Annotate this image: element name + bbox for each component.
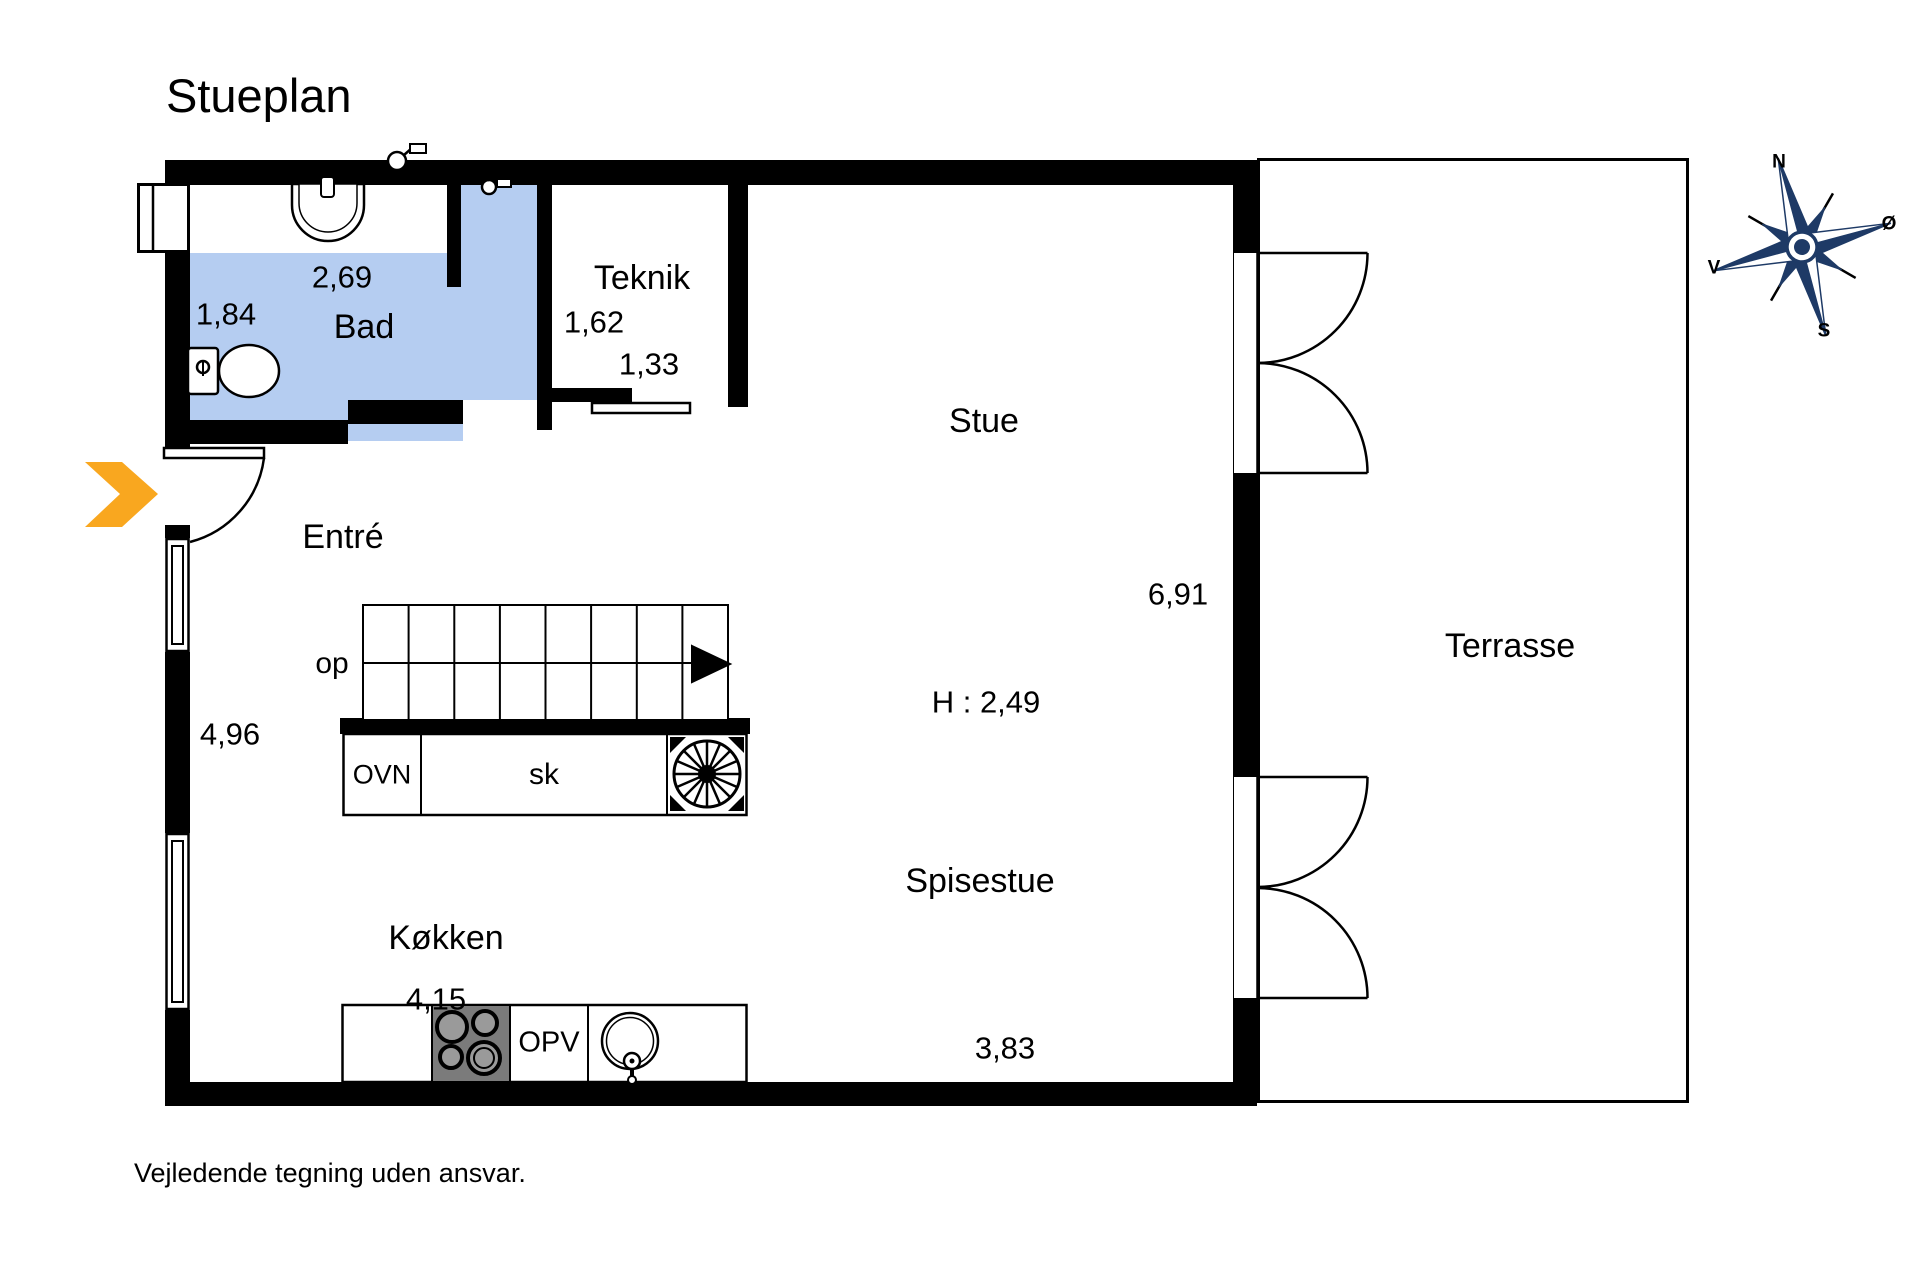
compass-east-label: Ø: [1882, 215, 1897, 234]
terrace-door-top: [1258, 253, 1368, 473]
room-label-bad: Bad: [334, 310, 395, 344]
floorplan-drawing: [0, 0, 1920, 1280]
dim-bad-width: 2,69: [312, 262, 372, 293]
stairs: [363, 605, 730, 720]
dim-spisestue-width: 3,83: [975, 1033, 1035, 1064]
cabinet-label: sk: [529, 760, 559, 790]
dim-teknik-2: 1,33: [619, 349, 679, 380]
disclaimer-text: Vejledende tegning uden ansvar.: [134, 1160, 526, 1187]
wall-bath-stub: [447, 185, 461, 287]
dim-bad-depth: 1,84: [196, 299, 256, 330]
floorplan-page: Stueplan Bad 2,69 1,84 Teknik 1,62 1,33 …: [0, 0, 1920, 1280]
bathroom-door-gap: [463, 400, 537, 441]
entry-arrow-icon: [85, 462, 158, 527]
dim-teknik-1: 1,62: [564, 307, 624, 338]
room-label-spisestue: Spisestue: [905, 864, 1054, 898]
compass-west-label: V: [1708, 259, 1721, 278]
dim-kokken-width: 4,15: [406, 984, 466, 1015]
stairs-label: op: [315, 649, 348, 679]
wall-teknik-right: [728, 185, 748, 407]
wall-bottom: [165, 1082, 1257, 1106]
page-title: Stueplan: [166, 72, 352, 119]
entry-door-swing: [190, 458, 264, 542]
toilet-icon: [188, 345, 279, 397]
dim-stue-length: 6,91: [1148, 579, 1208, 610]
compass-south-label: S: [1818, 322, 1831, 341]
teknik-door: [592, 403, 690, 413]
window-bath-icon: [139, 185, 189, 252]
room-label-kokken: Køkken: [388, 921, 503, 955]
wall-bath-bottom-a: [165, 420, 348, 444]
wall-teknik-bottom: [540, 388, 632, 402]
entry-door-leaf: [164, 448, 264, 458]
room-label-stue: Stue: [949, 404, 1019, 438]
room-label-entre: Entré: [302, 520, 383, 554]
compass-rose-icon: [1689, 134, 1914, 359]
dishwasher-label: OPV: [518, 1029, 579, 1058]
bath-sink-icon: [292, 177, 364, 241]
room-label-teknik: Teknik: [594, 261, 690, 295]
room-label-terrasse: Terrasse: [1445, 629, 1575, 663]
dim-left-wall: 4,96: [200, 719, 260, 750]
stove-icon: [432, 1005, 510, 1082]
compass-north-label: N: [1772, 153, 1786, 172]
oven-label: OVN: [353, 762, 412, 789]
wall-bath-bottom-b: [348, 400, 463, 424]
terrace-door-bottom: [1258, 777, 1368, 998]
dim-ceiling-height: H : 2,49: [932, 687, 1041, 718]
